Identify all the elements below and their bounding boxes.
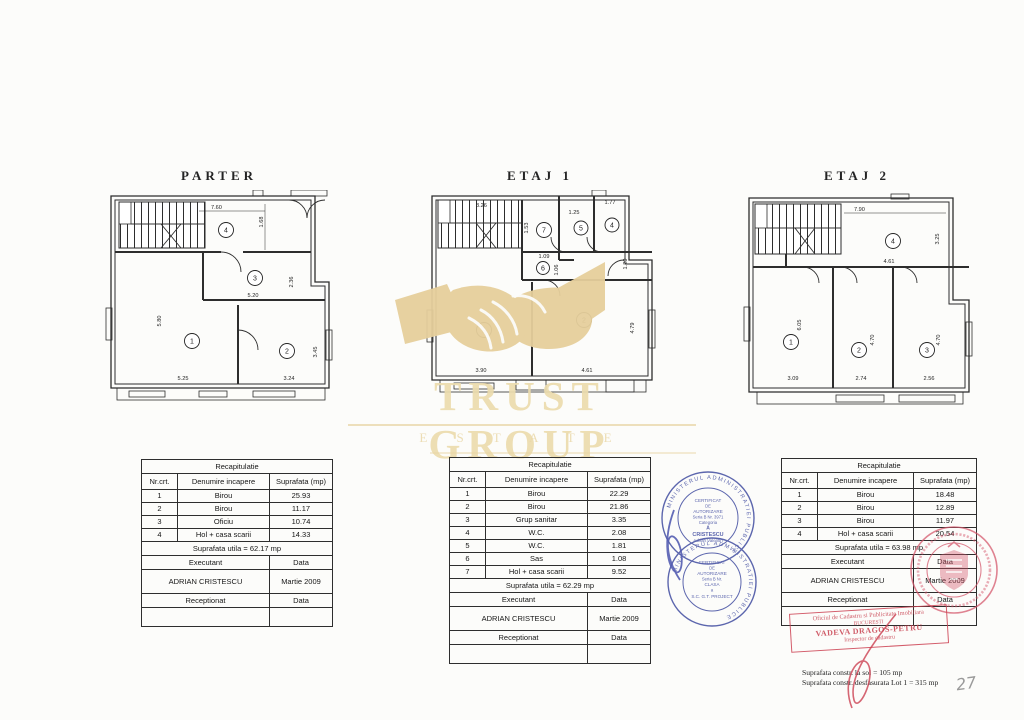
cell-room: W.C. (486, 540, 588, 553)
table-row: Recapitulatie (450, 458, 650, 472)
cell-area: 14.33 (270, 529, 332, 542)
stamp-line: Seria B Nr. 3971 (693, 515, 724, 520)
executant-date: Martie 2009 (270, 570, 332, 594)
table-row: Recapitulatie (142, 460, 332, 474)
cell-room: Grup sanitar (486, 514, 588, 527)
room-number: 1 (190, 339, 194, 346)
cell-nr: 1 (142, 490, 178, 503)
table-row: 1Birou25.93 (142, 490, 332, 503)
cell-nr: 5 (450, 540, 486, 553)
col-header-room: Denumire incapere (486, 472, 588, 488)
dim-label: 1.53 (524, 223, 530, 234)
dim-label: 1.29 (623, 259, 629, 270)
recap-table-parter: RecapitulatieNr.crt.Denumire incapereSup… (141, 459, 333, 627)
received-label: Receptionat (782, 593, 914, 607)
col-header-nr: Nr.crt. (450, 472, 486, 488)
cell-nr: 4 (782, 528, 818, 541)
cell-room: Birou (818, 489, 914, 502)
dim-label: 3.26 (476, 203, 487, 209)
entry-steps (757, 392, 963, 404)
table-title: Recapitulatie (782, 459, 976, 473)
stamp-line: CERTIFICAT (695, 498, 722, 503)
table-row: 6Sas1.08 (450, 553, 650, 566)
cell-room: Sas (486, 553, 588, 566)
dim-label: 5.80 (157, 316, 163, 327)
dim-label: 1.77 (605, 200, 616, 206)
cell-nr: 3 (450, 514, 486, 527)
cell-area: 10.74 (270, 516, 332, 529)
room-number: 5 (579, 226, 583, 233)
table-row: ADRIAN CRISTESCUMartie 2009 (450, 607, 650, 631)
cell-area: 9.52 (588, 566, 650, 579)
dim-label: 7.60 (211, 205, 222, 211)
cell-area: 22.29 (588, 488, 650, 501)
floor-plan-parter: 7.60 1.68 5.20 2.36 5.80 5.25 3.24 3.45 … (103, 190, 335, 414)
cell-room: Oficiu (178, 516, 270, 529)
col-header-area: Suprafata (mp) (914, 473, 976, 489)
cell-nr: 2 (782, 502, 818, 515)
signature-red (800, 612, 960, 717)
date-label: Data (270, 594, 332, 608)
cell-nr: 2 (450, 501, 486, 514)
dim-label: 1.25 (569, 210, 580, 216)
table-row: ExecutantData (450, 593, 650, 607)
room-number: 2 (857, 348, 861, 355)
cell-room: Birou (486, 488, 588, 501)
plan-title-etaj2: ETAJ 2 (741, 168, 973, 184)
watermark-subtitle-text: E S T A T E (352, 430, 692, 446)
stamp-line: DE (705, 504, 711, 509)
col-header-area: Suprafata (mp) (588, 472, 650, 488)
cell-nr: 7 (450, 566, 486, 579)
interior-walls (753, 254, 969, 388)
stamp-line: DE (709, 566, 715, 571)
room-number: 3 (253, 276, 257, 283)
dim-label: 2.36 (289, 277, 295, 288)
date-label: Data (588, 593, 650, 607)
cell-nr: 6 (450, 553, 486, 566)
interior-walls (115, 252, 325, 384)
table-row: ExecutantData (142, 556, 332, 570)
cell-room: Birou (178, 503, 270, 516)
dim-label: 7.90 (854, 207, 865, 213)
executant-name: ADRIAN CRISTESCU (450, 607, 588, 631)
empty-cell (142, 608, 270, 626)
room-number: 1 (789, 340, 793, 347)
stamp-line: AUTORIZARE (693, 509, 723, 514)
doors (221, 200, 325, 350)
executant-date: Martie 2009 (588, 607, 650, 631)
stamp-line: A (706, 526, 710, 532)
dim-label: 5.25 (178, 376, 189, 382)
dim-label: 4.61 (884, 259, 895, 265)
cell-room: Birou (178, 490, 270, 503)
coat-of-arms (940, 542, 968, 590)
cell-room: Birou (486, 501, 588, 514)
table-row: 1Birou18.48 (782, 489, 976, 502)
dim-label: 3.25 (935, 234, 941, 245)
room-number: 4 (610, 223, 614, 230)
executant-name: ADRIAN CRISTESCU (782, 569, 914, 593)
windows (106, 308, 332, 360)
dim-label: 4.79 (630, 323, 636, 334)
table-row: ReceptionatData (142, 594, 332, 608)
watermark-divider (348, 424, 696, 426)
table-title: Recapitulatie (142, 460, 332, 474)
cell-room: Birou (818, 502, 914, 515)
cell-room: Hol + casa scarii (178, 529, 270, 542)
col-header-nr: Nr.crt. (782, 473, 818, 489)
stamp-line: AUTORIZARE (697, 571, 727, 576)
cell-nr: 3 (782, 515, 818, 528)
room-number: 3 (925, 348, 929, 355)
col-header-area: Suprafata (mp) (270, 474, 332, 490)
stamp-line: a (711, 588, 714, 593)
cell-nr: 4 (450, 527, 486, 540)
stamp-line: CLASA (704, 582, 720, 587)
date-label: Data (588, 631, 650, 645)
total-usable-area: Suprafata utila = 62.17 mp (142, 542, 332, 556)
stamp-line: CERTIFICAT (699, 560, 726, 565)
cell-area: 1.81 (588, 540, 650, 553)
dim-label: 3.24 (284, 376, 295, 382)
cell-area: 11.17 (270, 503, 332, 516)
table-row: 2Birou11.17 (142, 503, 332, 516)
dim-label: 3.45 (313, 347, 319, 358)
table-row: 5W.C.1.81 (450, 540, 650, 553)
dim-label: 4.70 (870, 335, 876, 346)
entry-steps (117, 388, 325, 400)
table-row: Nr.crt.Denumire incapereSuprafata (mp) (782, 473, 976, 489)
cell-nr: 1 (782, 489, 818, 502)
cell-nr: 4 (142, 529, 178, 542)
cell-nr: 3 (142, 516, 178, 529)
table-row: Suprafata utila = 62.29 mp (450, 579, 650, 593)
stamp-line: S.C. G.T. PROJECT (691, 594, 733, 599)
plan-title-etaj1: ETAJ 1 (424, 168, 656, 184)
plan-title-parter: PARTER (103, 168, 335, 184)
table-row: 4W.C.2.08 (450, 527, 650, 540)
floor-plan-etaj2: 7.90 3.25 4.61 6.05 3.09 4.70 2.74 4.70 … (741, 192, 977, 418)
date-label: Data (270, 556, 332, 570)
table-row: ReceptionatData (450, 631, 650, 645)
executant-name: ADRIAN CRISTESCU (142, 570, 270, 594)
col-header-room: Denumire incapere (818, 473, 914, 489)
executant-label: Executant (142, 556, 270, 570)
cell-area: 2.08 (588, 527, 650, 540)
col-header-room: Denumire incapere (178, 474, 270, 490)
cell-room: Hol + casa scarii (486, 566, 588, 579)
table-row: Nr.crt.Denumire incapereSuprafata (mp) (142, 474, 332, 490)
table-row: Nr.crt.Denumire incapereSuprafata (mp) (450, 472, 650, 488)
table-row: Suprafata utila = 62.17 mp (142, 542, 332, 556)
table-row: 1Birou22.29 (450, 488, 650, 501)
cell-area: 18.48 (914, 489, 976, 502)
handshake-watermark-icon (395, 248, 605, 383)
room-number: 4 (224, 228, 228, 235)
cell-nr: 2 (142, 503, 178, 516)
executant-label: Executant (782, 555, 914, 569)
table-row (142, 608, 332, 626)
received-label: Receptionat (142, 594, 270, 608)
dim-label: 5.20 (248, 293, 259, 299)
cell-area: 25.93 (270, 490, 332, 503)
stamp-line: Categoria (699, 520, 718, 525)
cell-room: Hol + casa scarii (818, 528, 914, 541)
cell-area: 3.35 (588, 514, 650, 527)
col-header-nr: Nr.crt. (142, 474, 178, 490)
table-row: 2Birou12.89 (782, 502, 976, 515)
empty-cell (588, 645, 650, 663)
dim-label: 6.05 (797, 320, 803, 331)
cell-room: Birou (818, 515, 914, 528)
table-row (450, 645, 650, 663)
certification-stamps-blue: MINISTERUL ADMINISTRATIEI PUBLICE MINIST… (646, 458, 786, 653)
room-number: 2 (285, 349, 289, 356)
dim-label: 1.68 (259, 217, 265, 228)
cell-nr: 1 (450, 488, 486, 501)
dim-label: 4.70 (936, 335, 942, 346)
stamp-line: Adrian Valentin (693, 538, 723, 543)
empty-cell (450, 645, 588, 663)
total-usable-area: Suprafata utila = 62.29 mp (450, 579, 650, 593)
watermark-divider (430, 452, 696, 454)
table-row: 3Grup sanitar3.35 (450, 514, 650, 527)
cell-area: 12.89 (914, 502, 976, 515)
table-row: Recapitulatie (782, 459, 976, 473)
doors (803, 267, 917, 283)
staircase (755, 204, 841, 254)
table-row: 3Oficiu10.74 (142, 516, 332, 529)
table-title: Recapitulatie (450, 458, 650, 472)
dim-label: 2.56 (924, 376, 935, 382)
dim-label: 3.09 (788, 376, 799, 382)
cell-room: W.C. (486, 527, 588, 540)
dim-label: 2.74 (856, 376, 867, 382)
scanned-floor-plan-document: PARTER ETAJ 1 ETAJ 2 (0, 0, 1024, 720)
table-row: 2Birou21.86 (450, 501, 650, 514)
room-number: 4 (891, 239, 895, 246)
table-row: 4Hol + casa scarii14.33 (142, 529, 332, 542)
cell-area: 21.86 (588, 501, 650, 514)
empty-cell (270, 608, 332, 626)
room-number: 7 (542, 228, 546, 235)
executant-label: Executant (450, 593, 588, 607)
table-row: ADRIAN CRISTESCUMartie 2009 (142, 570, 332, 594)
table-row: 7Hol + casa scarii9.52 (450, 566, 650, 579)
staircase (119, 202, 205, 248)
cell-area: 1.08 (588, 553, 650, 566)
received-label: Receptionat (450, 631, 588, 645)
recap-table-etaj1: RecapitulatieNr.crt.Denumire incapereSup… (449, 457, 651, 664)
stamp-line: Seria B Nr. (702, 577, 722, 582)
